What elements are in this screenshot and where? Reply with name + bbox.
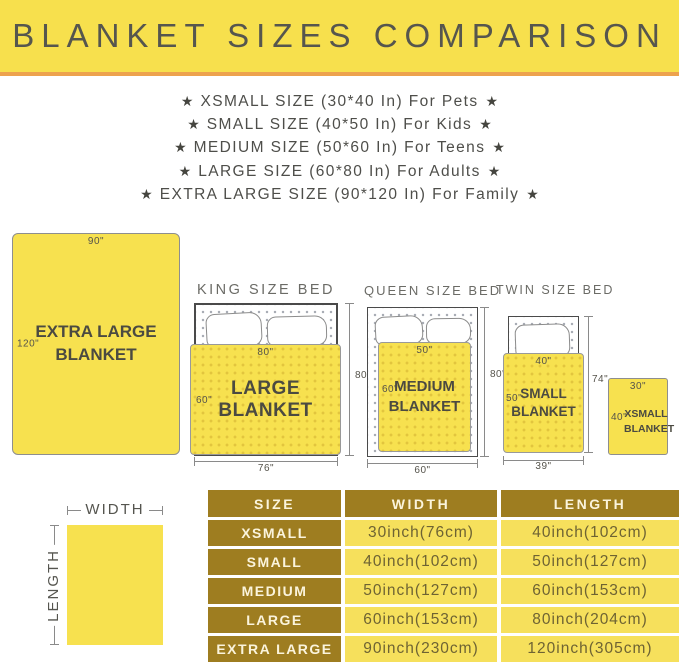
size-list-text: XSMALL SIZE (30*40 In) For Pets	[200, 93, 478, 110]
extra-large-blanket-diagram: 90" 120" EXTRA LARGE BLANKET	[12, 233, 180, 455]
size-list-text: SMALL SIZE (40*50 In) For Kids	[207, 116, 472, 133]
legend-width-line: WIDTH	[67, 506, 163, 515]
star-icon: ★	[167, 139, 194, 155]
star-icon: ★	[479, 93, 506, 109]
table-width-cell: 90inch(230cm)	[345, 636, 497, 662]
table-size-cell: SMALL	[208, 549, 341, 575]
size-list-item: ★MEDIUM SIZE (50*60 In) For Teens★	[0, 136, 679, 159]
king-bed-title: KING SIZE BED	[194, 282, 338, 298]
size-list-text: EXTRA LARGE SIZE (90*120 In) For Family	[160, 186, 520, 203]
legend-width-label: WIDTH	[81, 501, 148, 518]
xsmall-blanket-label: XSMALL BLANKET	[624, 407, 668, 436]
size-list-item: ★EXTRA LARGE SIZE (90*120 In) For Family…	[0, 183, 679, 206]
table-size-cell: EXTRA LARGE	[208, 636, 341, 662]
xsmall-blanket-diagram: 30" 40" XSMALL BLANKET	[608, 378, 668, 455]
table-header-cell: LENGTH	[501, 490, 679, 517]
table-width-cell: 30inch(76cm)	[345, 520, 497, 546]
twin-bed-length-dimension: 74"	[592, 374, 608, 385]
table-size-cell: MEDIUM	[208, 578, 341, 604]
page-title: BLANKET SIZES COMPARISON	[12, 17, 667, 55]
small-blanket-length-dimension: 50"	[506, 393, 522, 404]
legend-length-line: LENGTH	[50, 525, 59, 645]
medium-blanket-diagram: 50" 60" MEDIUM BLANKET	[378, 342, 471, 452]
king-pillow-right	[267, 315, 328, 347]
large-blanket-label: LARGE BLANKET	[191, 378, 340, 422]
table-size-cell: XSMALL	[208, 520, 341, 546]
size-list-text: LARGE SIZE (60*80 In) For Adults	[198, 163, 481, 180]
size-list-item: ★SMALL SIZE (40*50 In) For Kids★	[0, 113, 679, 136]
star-icon: ★	[481, 163, 508, 179]
table-length-cell: 60inch(153cm)	[501, 578, 679, 604]
king-bed-length-line	[345, 303, 354, 456]
small-blanket-width-dimension: 40"	[504, 356, 583, 367]
size-list-item: ★LARGE SIZE (60*80 In) For Adults★	[0, 160, 679, 183]
xl-blanket-label: EXTRA LARGE BLANKET	[26, 321, 166, 367]
star-icon: ★	[180, 116, 207, 132]
medium-blanket-length-dimension: 60"	[382, 384, 398, 395]
king-bed-width-dimension: 76"	[194, 463, 338, 474]
small-blanket-diagram: 40" 50" SMALL BLANKET	[503, 353, 584, 453]
size-list-item: ★XSMALL SIZE (30*40 In) For Pets★	[0, 90, 679, 113]
star-icon: ★	[133, 186, 160, 202]
star-icon: ★	[485, 139, 512, 155]
queen-bed-width-dimension: 60"	[367, 465, 478, 476]
xl-width-dimension: 90"	[13, 236, 179, 247]
table-length-cell: 40inch(102cm)	[501, 520, 679, 546]
size-list-text: MEDIUM SIZE (50*60 In) For Teens	[194, 139, 486, 156]
size-list: ★XSMALL SIZE (30*40 In) For Pets★★SMALL …	[0, 90, 679, 206]
large-blanket-width-dimension: 80"	[191, 347, 340, 358]
table-length-cell: 50inch(127cm)	[501, 549, 679, 575]
queen-bed-title: QUEEN SIZE BED	[364, 283, 478, 298]
twin-bed-width-dimension: 39"	[503, 461, 584, 472]
queen-pillow-right	[426, 318, 471, 345]
star-icon: ★	[472, 116, 499, 132]
large-blanket-length-dimension: 60"	[196, 395, 212, 406]
large-blanket-diagram: 80" 60" LARGE BLANKET	[190, 344, 341, 455]
size-comparison-table: SIZEWIDTHLENGTHXSMALL30inch(76cm)40inch(…	[208, 490, 679, 662]
twin-bed-title: TWIN SIZE BED	[496, 283, 591, 297]
blanket-sizes-infographic: BLANKET SIZES COMPARISON ★XSMALL SIZE (3…	[0, 0, 679, 667]
legend-length-label: LENGTH	[45, 545, 62, 626]
medium-blanket-width-dimension: 50"	[379, 345, 470, 356]
xl-length-dimension: 120"	[17, 339, 39, 350]
header-banner: BLANKET SIZES COMPARISON	[0, 0, 679, 76]
table-length-cell: 120inch(305cm)	[501, 636, 679, 662]
table-width-cell: 60inch(153cm)	[345, 607, 497, 633]
table-header-cell: WIDTH	[345, 490, 497, 517]
legend-blanket-swatch	[67, 525, 163, 645]
xsmall-width-dimension: 30"	[609, 381, 667, 392]
table-header-cell: SIZE	[208, 490, 341, 517]
star-icon: ★	[519, 186, 546, 202]
king-pillow-left	[205, 312, 263, 349]
queen-bed-length-line	[480, 307, 489, 457]
table-width-cell: 40inch(102cm)	[345, 549, 497, 575]
star-icon: ★	[172, 163, 199, 179]
medium-blanket-label: MEDIUM BLANKET	[382, 377, 467, 418]
table-length-cell: 80inch(204cm)	[501, 607, 679, 633]
table-size-cell: LARGE	[208, 607, 341, 633]
table-width-cell: 50inch(127cm)	[345, 578, 497, 604]
star-icon: ★	[174, 93, 201, 109]
